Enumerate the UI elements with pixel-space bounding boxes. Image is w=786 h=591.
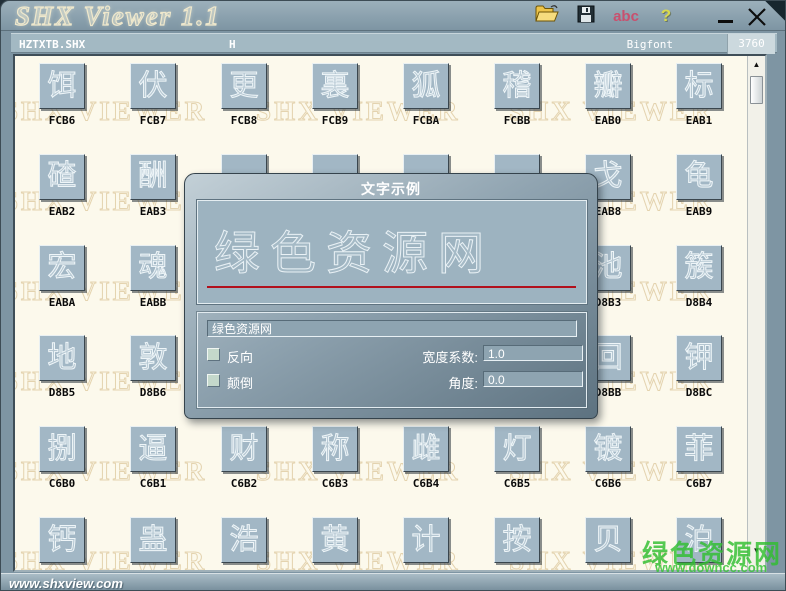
glyph-cell-C6B3[interactable]: 称 (312, 426, 358, 472)
glyph-char: 魂 (138, 253, 167, 282)
glyph-code-label: EAB1 (669, 114, 729, 127)
glyph-code-label: D8BC (669, 386, 729, 399)
help-button[interactable]: ? (653, 6, 679, 26)
glyph-count-badge: 3760 (727, 34, 775, 54)
reverse-checkbox-label: 反向 (227, 347, 253, 366)
glyph-code-label: FCB9 (305, 114, 365, 127)
glyph-char: 蛊 (138, 526, 167, 555)
glyph-char: 菲 (684, 435, 713, 464)
glyph-char: 标 (684, 72, 713, 101)
glyph-cell-EAB0[interactable]: 瓣 (585, 63, 631, 109)
reverse-checkbox[interactable] (207, 348, 220, 361)
glyph-char: 钙 (47, 526, 76, 555)
glyph-code-label: EABA (32, 296, 92, 309)
text-preview-panel: 绿色资源网 (197, 200, 587, 304)
glyph-char: 浩 (229, 526, 258, 555)
glyph-cell[interactable]: 钙 (39, 517, 85, 563)
dialog-options-group: 绿色资源网 反向 颠倒 宽度系数: 1.0 角度: 0.0 (197, 312, 587, 408)
font-type-label: Bigfont (627, 38, 673, 51)
glyph-code-label: EAB2 (32, 205, 92, 218)
glyph-cell-FCBA[interactable]: 狐 (403, 63, 449, 109)
open-file-button[interactable] (533, 6, 559, 26)
glyph-code-label: FCB8 (214, 114, 274, 127)
glyph-code-label: EAB3 (123, 205, 183, 218)
glyph-cell-EAB3[interactable]: 酬 (130, 154, 176, 200)
glyph-code-label: C6B4 (396, 477, 456, 490)
width-factor-label: 宽度系数: (388, 347, 478, 366)
glyph-char: 簇 (684, 253, 713, 282)
glyph-char: 称 (320, 435, 349, 464)
glyph-char: 龟 (684, 162, 713, 191)
close-icon (747, 14, 767, 31)
glyph-code-label: C6B3 (305, 477, 365, 490)
glyph-char: 伏 (138, 72, 167, 101)
glyph-char: 地 (47, 344, 76, 373)
glyph-code-label: C6B2 (214, 477, 274, 490)
width-factor-input[interactable]: 1.0 (483, 345, 583, 361)
glyph-char: 计 (411, 526, 440, 555)
angle-input[interactable]: 0.0 (483, 371, 583, 387)
glyph-code-label: D8B4 (669, 296, 729, 309)
glyph-char: 酬 (138, 162, 167, 191)
glyph-char: 狐 (411, 72, 440, 101)
glyph-code-label: D8B5 (32, 386, 92, 399)
title-bar: SHX Viewer 1.1 (1, 1, 785, 31)
glyph-char: 捌 (47, 435, 76, 464)
save-floppy-icon (577, 5, 595, 28)
glyph-cell-C6B6[interactable]: 镀 (585, 426, 631, 472)
glyph-cell[interactable]: 贝 (585, 517, 631, 563)
abc-icon: abc (613, 8, 639, 25)
glyph-cell-C6B1[interactable]: 逼 (130, 426, 176, 472)
upsidedown-checkbox[interactable] (207, 374, 220, 387)
glyph-cell[interactable]: 计 (403, 517, 449, 563)
glyph-code-label: FCBA (396, 114, 456, 127)
glyph-cell-FCB6[interactable]: 饵 (39, 63, 85, 109)
glyph-char: 碴 (47, 162, 76, 191)
glyph-char: 贝 (593, 526, 622, 555)
glyph-cell-EABB[interactable]: 魂 (130, 245, 176, 291)
glyph-cell-FCB9[interactable]: 裏 (312, 63, 358, 109)
shxview-site-link: www.shxview.com (9, 576, 123, 591)
vertical-scrollbar[interactable]: ▲ ▼ (747, 56, 765, 570)
glyph-cell-C6B0[interactable]: 捌 (39, 426, 85, 472)
glyph-code-label: C6B6 (578, 477, 638, 490)
glyph-code-label: EAB9 (669, 205, 729, 218)
glyph-char: 钾 (684, 344, 713, 373)
preview-rendered-text: 绿色资源网 (214, 217, 494, 283)
glyph-code-label: EABB (123, 296, 183, 309)
glyph-char: 饵 (47, 72, 76, 101)
open-folder-icon (534, 4, 559, 28)
glyph-cell-FCB7[interactable]: 伏 (130, 63, 176, 109)
status-bar: HZTXTB.SHX H Bigfont 3760 (11, 33, 777, 53)
glyph-code-label: FCB6 (32, 114, 92, 127)
loaded-font-file: HZTXTB.SHX (19, 38, 85, 51)
glyph-char: 按 (502, 526, 531, 555)
sample-char-indicator: H (229, 38, 236, 51)
glyph-cell[interactable]: 黄 (312, 517, 358, 563)
bottom-bar: www.shxview.com (1, 573, 785, 591)
glyph-code-label: D8B6 (123, 386, 183, 399)
sample-text-input[interactable]: 绿色资源网 (207, 320, 577, 337)
glyph-code-label: C6B7 (669, 477, 729, 490)
glyph-char: 灯 (502, 435, 531, 464)
text-sample-dialog: 文字示例 绿色资源网 绿色资源网 反向 颠倒 宽度系数: 1.0 角度: 0.0 (184, 173, 598, 419)
scrollbar-thumb[interactable] (750, 76, 763, 104)
preview-baseline (207, 286, 576, 288)
glyph-char: 裏 (320, 72, 349, 101)
glyph-cell-EAB2[interactable]: 碴 (39, 154, 85, 200)
glyph-char: 逼 (138, 435, 167, 464)
background-watermark: SHX VIEWER SHX VIEWER SHX VIEWER SHX VIE… (15, 546, 747, 570)
site-watermark-url: www.downcc.com (655, 560, 767, 575)
scroll-up-icon[interactable]: ▲ (748, 60, 765, 70)
dialog-title: 文字示例 (185, 179, 597, 199)
glyph-cell[interactable]: 蛊 (130, 517, 176, 563)
glyph-code-label: FCBB (487, 114, 547, 127)
glyph-char: 黄 (320, 526, 349, 555)
glyph-char: 宏 (47, 253, 76, 282)
glyph-char: 稽 (502, 72, 531, 101)
glyph-cell-C6B2[interactable]: 财 (221, 426, 267, 472)
glyph-cell-FCB8[interactable]: 更 (221, 63, 267, 109)
glyph-char: 更 (229, 72, 258, 101)
glyph-char: 雌 (411, 435, 440, 464)
angle-label: 角度: (388, 373, 478, 392)
text-sample-button[interactable]: abc (613, 6, 639, 26)
app-window: SHX Viewer 1.1 (0, 0, 786, 591)
glyph-cell-C6B4[interactable]: 雌 (403, 426, 449, 472)
glyph-cell[interactable]: 按 (494, 517, 540, 563)
glyph-code-label: C6B5 (487, 477, 547, 490)
glyph-cell-D8B5[interactable]: 地 (39, 335, 85, 381)
glyph-cell-EABA[interactable]: 宏 (39, 245, 85, 291)
save-button[interactable] (573, 6, 599, 26)
glyph-cell-FCBB[interactable]: 稽 (494, 63, 540, 109)
glyph-code-label: EAB0 (578, 114, 638, 127)
glyph-cell[interactable]: 浩 (221, 517, 267, 563)
glyph-code-label: C6B1 (123, 477, 183, 490)
glyph-char: 镀 (593, 435, 622, 464)
glyph-char: 敦 (138, 344, 167, 373)
glyph-cell-C6B7[interactable]: 菲 (676, 426, 722, 472)
glyph-cell-D8B6[interactable]: 敦 (130, 335, 176, 381)
app-title: SHX Viewer 1.1 (15, 1, 221, 32)
glyph-cell-C6B5[interactable]: 灯 (494, 426, 540, 472)
upsidedown-checkbox-label: 颠倒 (227, 373, 253, 392)
minimize-button[interactable] (718, 20, 733, 23)
glyph-cell-EAB9[interactable]: 龟 (676, 154, 722, 200)
help-icon: ? (661, 6, 671, 26)
glyph-code-label: C6B0 (32, 477, 92, 490)
glyph-code-label: FCB7 (123, 114, 183, 127)
glyph-cell-D8B4[interactable]: 簇 (676, 245, 722, 291)
glyph-char: 财 (229, 435, 258, 464)
glyph-cell-EAB1[interactable]: 标 (676, 63, 722, 109)
glyph-char: 瓣 (593, 72, 622, 101)
close-button[interactable] (747, 7, 767, 27)
glyph-cell-D8BC[interactable]: 钾 (676, 335, 722, 381)
